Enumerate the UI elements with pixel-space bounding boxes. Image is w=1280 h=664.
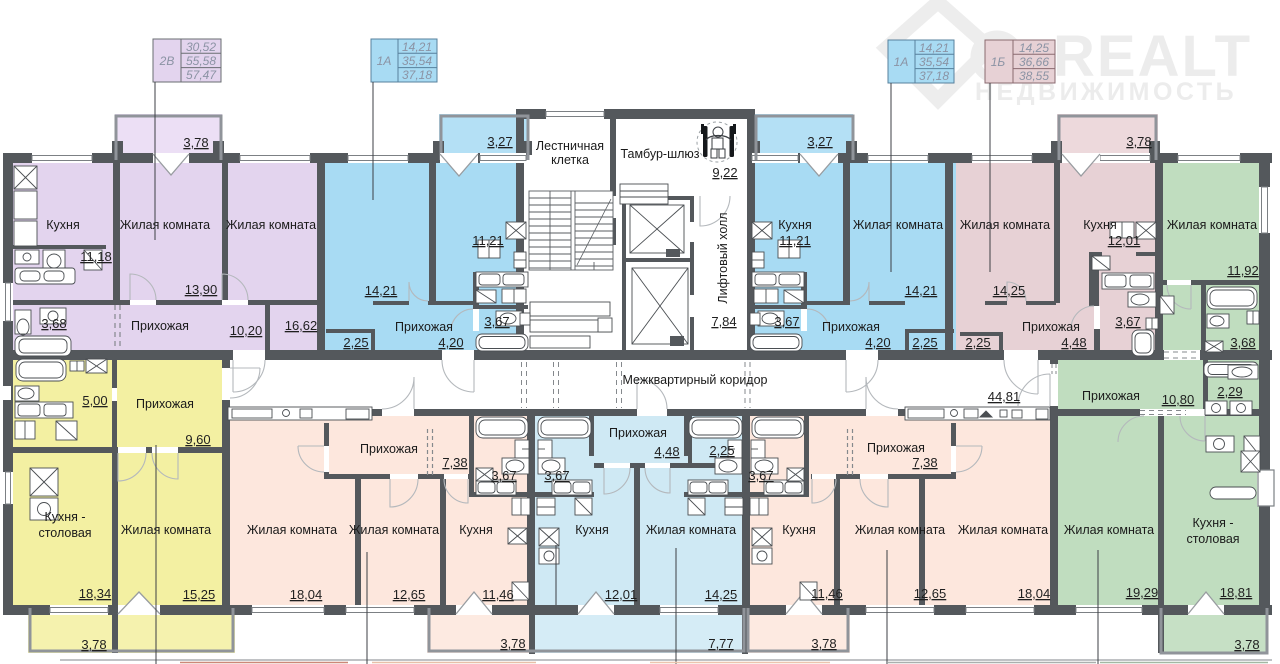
svg-text:35,54: 35,54: [402, 54, 432, 68]
svg-text:14,25: 14,25: [1019, 41, 1049, 55]
svg-text:Кухня: Кухня: [575, 523, 608, 537]
svg-text:2,25: 2,25: [709, 443, 734, 458]
svg-text:Жилая комната: Жилая комната: [1064, 523, 1154, 537]
svg-text:3,67: 3,67: [544, 468, 569, 483]
svg-text:37,18: 37,18: [919, 69, 949, 83]
svg-text:13,90: 13,90: [185, 282, 218, 297]
svg-text:18,04: 18,04: [290, 587, 323, 602]
svg-text:57,47: 57,47: [186, 68, 217, 82]
svg-text:3,78: 3,78: [1126, 134, 1151, 149]
svg-text:Кухня: Кухня: [778, 218, 811, 232]
svg-text:Жилая комната: Жилая комната: [646, 523, 736, 537]
svg-text:Жилая комната: Жилая комната: [120, 218, 210, 232]
svg-text:4,48: 4,48: [654, 444, 679, 459]
svg-text:1Б: 1Б: [991, 55, 1006, 69]
svg-text:4,20: 4,20: [438, 335, 463, 350]
svg-text:7,38: 7,38: [442, 455, 467, 470]
svg-text:11,46: 11,46: [482, 587, 514, 602]
svg-text:11,21: 11,21: [779, 233, 811, 248]
svg-text:Лифтовый холл: Лифтовый холл: [716, 212, 730, 303]
svg-text:3,78: 3,78: [1234, 637, 1259, 652]
svg-text:18,81: 18,81: [1220, 585, 1253, 600]
svg-text:14,21: 14,21: [905, 283, 938, 298]
svg-text:18,34: 18,34: [79, 586, 112, 601]
svg-text:2В: 2В: [159, 54, 175, 68]
svg-text:38,55: 38,55: [1019, 69, 1049, 83]
svg-text:16,62: 16,62: [285, 318, 318, 333]
svg-text:14,21: 14,21: [919, 41, 949, 55]
svg-text:3,67: 3,67: [1115, 314, 1140, 329]
svg-text:12,01: 12,01: [605, 587, 638, 602]
svg-text:Жилая комната: Жилая комната: [247, 523, 337, 537]
svg-text:3,67: 3,67: [774, 314, 799, 329]
svg-text:Жилая комната: Жилая комната: [855, 523, 945, 537]
svg-text:3,67: 3,67: [748, 468, 773, 483]
svg-text:7,38: 7,38: [912, 455, 937, 470]
svg-text:Жилая комната: Жилая комната: [853, 218, 943, 232]
svg-text:Межквартирный коридор: Межквартирный коридор: [622, 373, 767, 387]
svg-text:1А: 1А: [377, 54, 392, 68]
svg-text:3,78: 3,78: [500, 636, 525, 651]
svg-text:14,21: 14,21: [365, 283, 398, 298]
svg-text:Кухня -: Кухня -: [44, 510, 85, 524]
svg-text:36,66: 36,66: [1019, 55, 1049, 69]
svg-text:3,67: 3,67: [484, 314, 509, 329]
svg-text:Прихожая: Прихожая: [609, 426, 667, 440]
svg-text:9,22: 9,22: [712, 165, 737, 180]
svg-text:Прихожая: Прихожая: [395, 320, 453, 334]
svg-text:Прихожая: Прихожая: [360, 442, 418, 456]
svg-text:4,48: 4,48: [1061, 335, 1086, 350]
svg-text:клетка: клетка: [551, 153, 589, 167]
svg-text:35,54: 35,54: [919, 55, 949, 69]
svg-text:Жилая комната: Жилая комната: [121, 523, 211, 537]
svg-text:10,80: 10,80: [1162, 392, 1195, 407]
svg-text:Кухня: Кухня: [46, 218, 79, 232]
svg-text:Тамбур-шлюз: Тамбур-шлюз: [620, 147, 699, 161]
svg-text:3,78: 3,78: [183, 135, 208, 150]
svg-text:37,18: 37,18: [402, 68, 432, 82]
svg-text:Жилая комната: Жилая комната: [958, 523, 1048, 537]
svg-text:55,58: 55,58: [186, 54, 216, 68]
svg-text:19,29: 19,29: [1126, 585, 1159, 600]
svg-text:Кухня: Кухня: [1083, 218, 1116, 232]
svg-text:3,27: 3,27: [487, 134, 512, 149]
svg-text:Жилая комната: Жилая комната: [226, 218, 316, 232]
svg-text:44,81: 44,81: [988, 389, 1021, 404]
svg-text:Жилая комната: Жилая комната: [1167, 218, 1257, 232]
svg-text:4,20: 4,20: [865, 335, 890, 350]
svg-text:12,65: 12,65: [393, 587, 426, 602]
svg-text:3,68: 3,68: [41, 316, 66, 331]
svg-text:Прихожая: Прихожая: [1082, 389, 1140, 403]
svg-text:12,65: 12,65: [914, 586, 947, 601]
svg-text:11,46: 11,46: [811, 586, 843, 601]
svg-text:Лестничная: Лестничная: [536, 139, 604, 153]
svg-text:5,00: 5,00: [82, 393, 107, 408]
svg-text:Кухня -: Кухня -: [1192, 516, 1233, 530]
svg-text:Прихожая: Прихожая: [1022, 320, 1080, 334]
svg-text:14,21: 14,21: [402, 40, 432, 54]
svg-text:3,78: 3,78: [811, 636, 836, 651]
svg-text:10,20: 10,20: [230, 323, 263, 338]
svg-text:Прихожая: Прихожая: [867, 441, 925, 455]
svg-text:столовая: столовая: [1186, 532, 1239, 546]
svg-text:3,67: 3,67: [491, 468, 516, 483]
svg-text:Жилая комната: Жилая комната: [960, 218, 1050, 232]
svg-text:7,77: 7,77: [708, 636, 733, 651]
svg-text:15,25: 15,25: [183, 587, 216, 602]
svg-text:14,25: 14,25: [993, 283, 1026, 298]
svg-text:Кухня: Кухня: [782, 523, 815, 537]
svg-text:2,29: 2,29: [1217, 384, 1242, 399]
svg-text:2,25: 2,25: [965, 335, 990, 350]
svg-text:2,25: 2,25: [343, 335, 368, 350]
svg-text:2,25: 2,25: [912, 335, 937, 350]
svg-text:11,92: 11,92: [1227, 263, 1259, 278]
svg-text:30,52: 30,52: [186, 40, 216, 54]
svg-text:столовая: столовая: [38, 526, 91, 540]
svg-text:7,84: 7,84: [711, 314, 736, 329]
svg-text:14,25: 14,25: [705, 587, 738, 602]
svg-text:3,27: 3,27: [807, 134, 832, 149]
svg-text:Кухня: Кухня: [459, 523, 492, 537]
svg-text:Прихожая: Прихожая: [822, 320, 880, 334]
svg-text:1А: 1А: [894, 55, 909, 69]
svg-text:Прихожая: Прихожая: [131, 319, 189, 333]
svg-text:9,60: 9,60: [185, 432, 210, 447]
svg-text:11,21: 11,21: [472, 233, 504, 248]
svg-text:Жилая комната: Жилая комната: [349, 523, 439, 537]
svg-text:11,18: 11,18: [80, 249, 112, 264]
svg-text:12,01: 12,01: [1108, 233, 1141, 248]
svg-text:Прихожая: Прихожая: [136, 397, 194, 411]
svg-text:3,78: 3,78: [81, 637, 106, 652]
svg-text:3,68: 3,68: [1230, 335, 1255, 350]
svg-text:18,04: 18,04: [1018, 586, 1051, 601]
